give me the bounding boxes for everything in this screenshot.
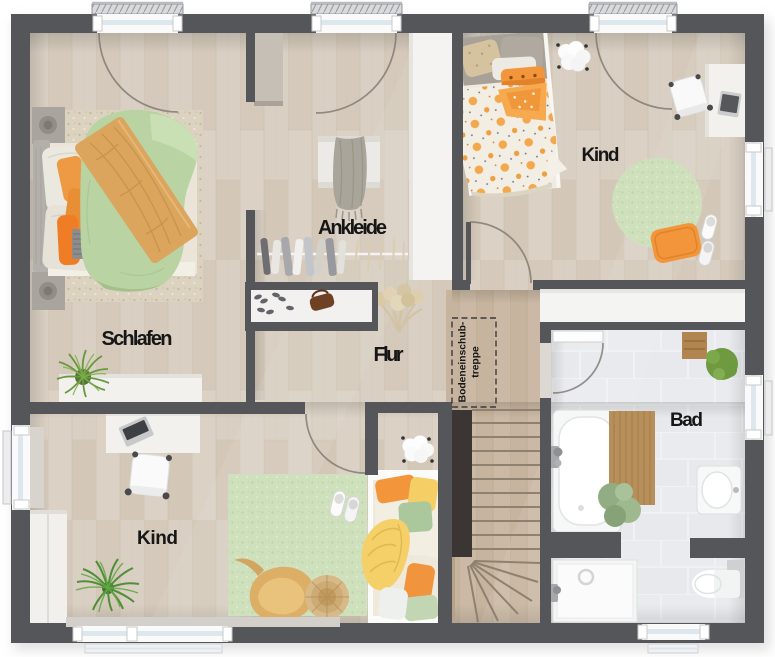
svg-text:Flur: Flur bbox=[374, 344, 404, 366]
svg-text:Schlafen: Schlafen bbox=[102, 328, 173, 350]
svg-text:Bodeneinschub-: Bodeneinschub- bbox=[458, 321, 469, 402]
svg-text:Ankleide: Ankleide bbox=[318, 217, 387, 239]
svg-text:Bad: Bad bbox=[670, 410, 703, 431]
svg-text:treppe: treppe bbox=[471, 346, 482, 378]
svg-text:Kind: Kind bbox=[137, 528, 178, 549]
svg-text:Kind: Kind bbox=[582, 145, 620, 166]
